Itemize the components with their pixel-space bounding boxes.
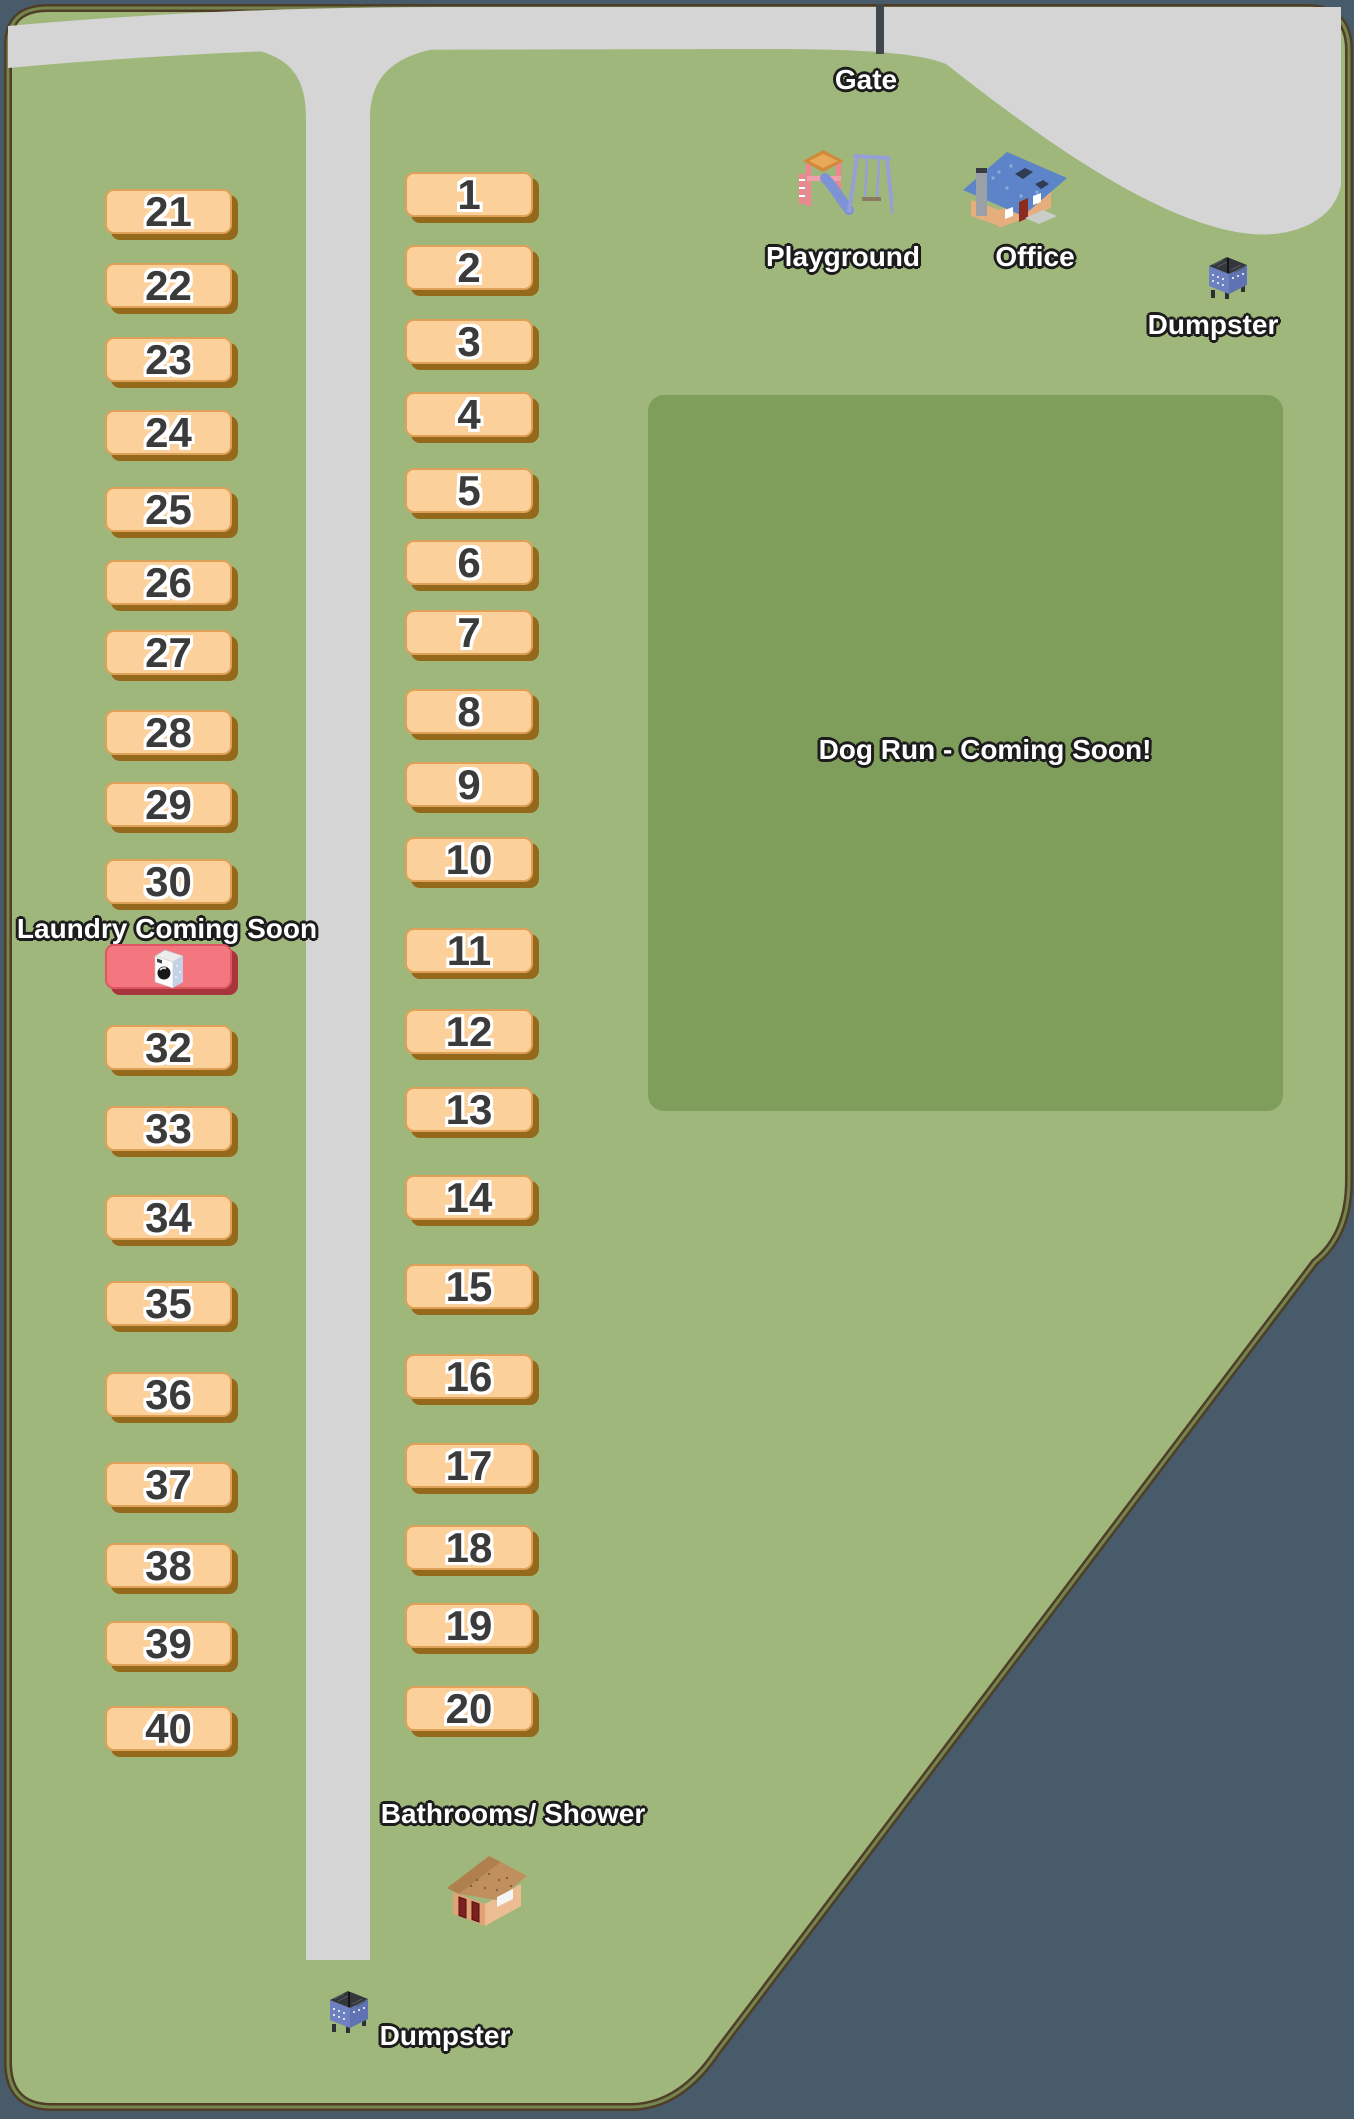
laundry-coming-soon-box[interactable] (105, 944, 232, 989)
site-box-30[interactable]: 30 (105, 859, 232, 904)
site-box-25[interactable]: 25 (105, 487, 232, 532)
site-number: 37 (145, 1464, 192, 1506)
site-number: 11 (447, 930, 491, 972)
site-number: 32 (145, 1027, 192, 1069)
site-box-3[interactable]: 3 (405, 319, 533, 364)
site-number: 9 (457, 764, 480, 806)
dumpster-bottom-label: Dumpster (380, 2020, 511, 2052)
site-number: 36 (145, 1374, 192, 1416)
dumpster-top-icon (1203, 254, 1253, 300)
site-number: 27 (145, 632, 192, 674)
site-number: 34 (145, 1197, 192, 1239)
site-number: 23 (145, 339, 192, 381)
site-number: 22 (145, 265, 192, 307)
playground-icon (797, 146, 893, 218)
site-number: 19 (446, 1605, 493, 1647)
site-box-10[interactable]: 10 (405, 837, 533, 882)
site-number: 18 (446, 1527, 493, 1569)
site-number: 16 (446, 1356, 493, 1398)
site-box-18[interactable]: 18 (405, 1525, 533, 1570)
site-number: 8 (457, 691, 480, 733)
site-number: 17 (446, 1445, 493, 1487)
site-number: 25 (145, 489, 192, 531)
site-box-23[interactable]: 23 (105, 337, 232, 382)
washer-icon (153, 946, 185, 988)
site-number: 5 (457, 470, 480, 512)
gate-bar (876, 4, 884, 54)
dumpster-bottom-icon (324, 1986, 374, 2036)
site-number: 3 (457, 321, 480, 363)
site-number: 33 (145, 1108, 192, 1150)
site-number: 14 (446, 1177, 493, 1219)
site-number: 4 (457, 394, 480, 436)
site-number: 35 (145, 1283, 192, 1325)
site-number: 2 (457, 247, 480, 289)
site-box-9[interactable]: 9 (405, 762, 533, 807)
site-number: 28 (145, 712, 192, 754)
site-box-21[interactable]: 21 (105, 189, 232, 234)
site-number: 30 (145, 861, 192, 903)
site-box-7[interactable]: 7 (405, 610, 533, 655)
site-number: 6 (457, 542, 480, 584)
site-box-33[interactable]: 33 (105, 1106, 232, 1151)
site-box-13[interactable]: 13 (405, 1087, 533, 1132)
site-box-14[interactable]: 14 (405, 1175, 533, 1220)
site-number: 1 (457, 174, 480, 216)
site-box-6[interactable]: 6 (405, 540, 533, 585)
site-number: 40 (145, 1708, 192, 1750)
site-box-1[interactable]: 1 (405, 172, 533, 217)
bathhouse-icon (441, 1848, 529, 1928)
site-box-17[interactable]: 17 (405, 1443, 533, 1488)
site-box-26[interactable]: 26 (105, 560, 232, 605)
site-number: 12 (446, 1011, 493, 1053)
office-icon (963, 144, 1068, 228)
site-number: 38 (145, 1545, 192, 1587)
site-number: 39 (145, 1623, 192, 1665)
site-box-12[interactable]: 12 (405, 1009, 533, 1054)
dumpster-top-label: Dumpster (1148, 309, 1279, 341)
site-box-20[interactable]: 20 (405, 1686, 533, 1731)
site-number: 20 (446, 1688, 493, 1730)
site-box-37[interactable]: 37 (105, 1462, 232, 1507)
gate-label: Gate (835, 64, 897, 96)
dog-run-label: Dog Run - Coming Soon! (819, 734, 1152, 766)
site-box-27[interactable]: 27 (105, 630, 232, 675)
site-number: 21 (145, 191, 192, 233)
site-box-28[interactable]: 28 (105, 710, 232, 755)
site-box-11[interactable]: 11 (405, 928, 533, 973)
laundry-label: Laundry Coming Soon (17, 913, 317, 945)
site-number: 7 (457, 612, 480, 654)
site-box-4[interactable]: 4 (405, 392, 533, 437)
playground-label: Playground (766, 241, 920, 273)
site-box-2[interactable]: 2 (405, 245, 533, 290)
site-number: 10 (446, 839, 493, 881)
site-box-32[interactable]: 32 (105, 1025, 232, 1070)
site-box-19[interactable]: 19 (405, 1603, 533, 1648)
site-number: 13 (446, 1089, 493, 1131)
site-box-8[interactable]: 8 (405, 689, 533, 734)
site-box-38[interactable]: 38 (105, 1543, 232, 1588)
site-box-15[interactable]: 15 (405, 1264, 533, 1309)
site-box-35[interactable]: 35 (105, 1281, 232, 1326)
site-box-39[interactable]: 39 (105, 1621, 232, 1666)
campground-map: Gate Playground Office Dumpster Dog Run … (0, 0, 1354, 2119)
site-number: 24 (145, 412, 192, 454)
site-box-16[interactable]: 16 (405, 1354, 533, 1399)
site-box-36[interactable]: 36 (105, 1372, 232, 1417)
site-number: 15 (446, 1266, 493, 1308)
site-box-40[interactable]: 40 (105, 1706, 232, 1751)
office-label: Office (995, 241, 1074, 273)
site-box-29[interactable]: 29 (105, 782, 232, 827)
site-box-5[interactable]: 5 (405, 468, 533, 513)
site-box-34[interactable]: 34 (105, 1195, 232, 1240)
site-box-22[interactable]: 22 (105, 263, 232, 308)
site-number: 26 (145, 562, 192, 604)
site-box-24[interactable]: 24 (105, 410, 232, 455)
bathrooms-label: Bathrooms/ Shower (381, 1798, 645, 1830)
site-number: 29 (145, 784, 192, 826)
